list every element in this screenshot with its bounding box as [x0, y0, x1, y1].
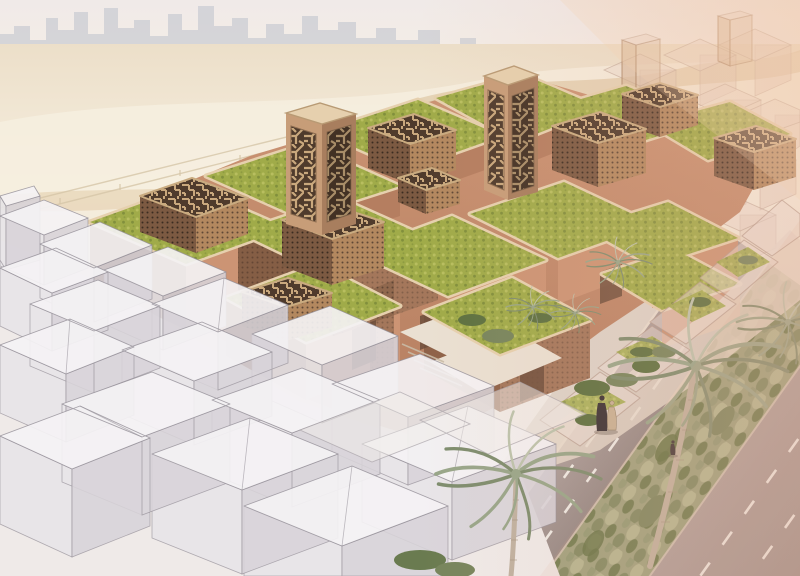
architectural-rendering — [0, 0, 800, 576]
atmospheric-washes — [420, 0, 800, 576]
wind-tower-left — [286, 103, 356, 235]
render-canvas — [0, 0, 800, 576]
